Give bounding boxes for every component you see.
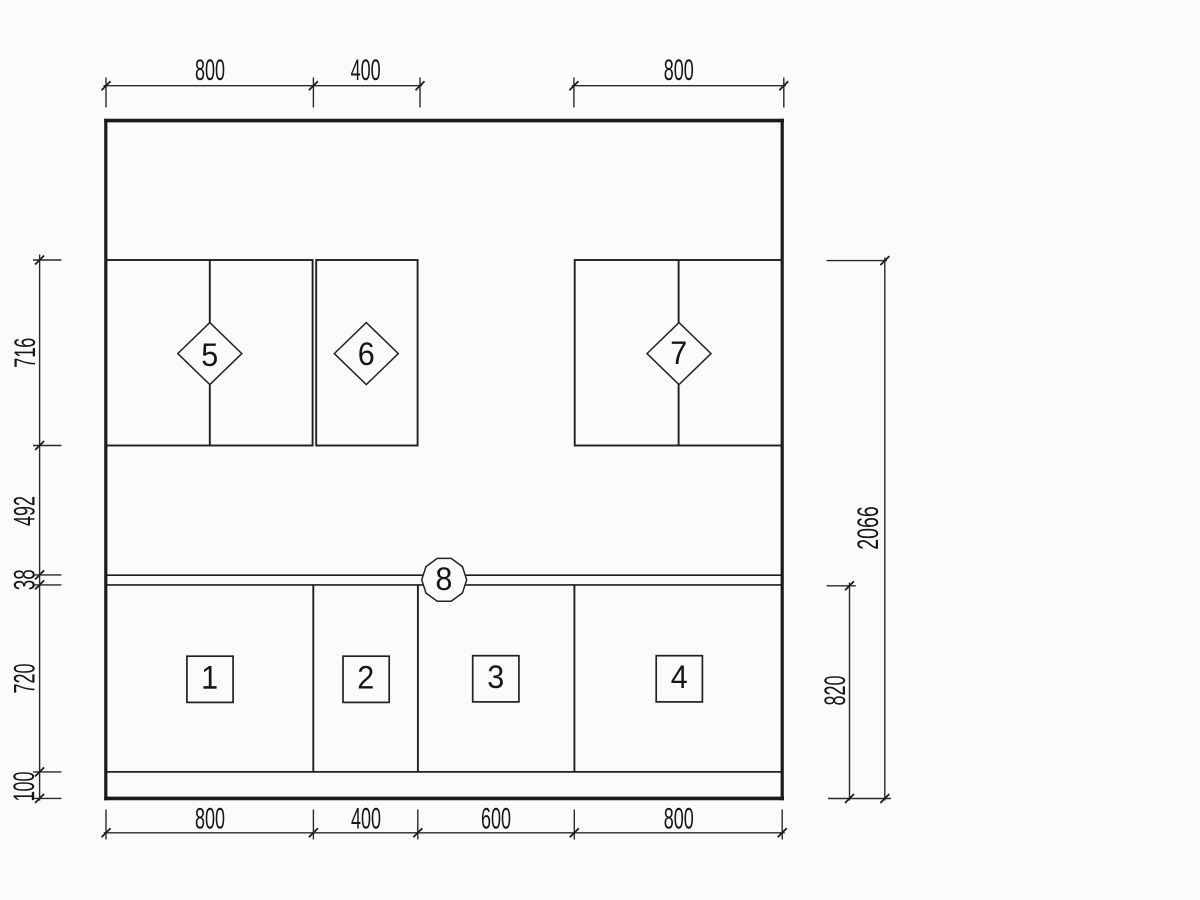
svg-text:38: 38 <box>9 569 42 590</box>
svg-text:800: 800 <box>664 54 694 87</box>
svg-text:720: 720 <box>9 664 42 694</box>
svg-text:6: 6 <box>358 336 375 372</box>
svg-text:2: 2 <box>357 660 374 696</box>
svg-text:400: 400 <box>351 803 381 836</box>
svg-text:8: 8 <box>435 561 452 597</box>
svg-text:600: 600 <box>481 803 511 836</box>
svg-text:100: 100 <box>8 772 41 802</box>
svg-text:800: 800 <box>664 803 694 836</box>
svg-text:820: 820 <box>819 676 852 706</box>
svg-text:3: 3 <box>487 659 504 695</box>
svg-text:7: 7 <box>670 335 687 371</box>
svg-text:5: 5 <box>201 337 218 373</box>
svg-text:716: 716 <box>9 338 42 368</box>
svg-text:4: 4 <box>671 659 688 695</box>
svg-text:400: 400 <box>351 54 381 87</box>
svg-text:1: 1 <box>201 660 218 696</box>
svg-text:800: 800 <box>195 54 225 87</box>
svg-text:2066: 2066 <box>852 506 885 550</box>
svg-text:800: 800 <box>195 803 225 836</box>
svg-text:492: 492 <box>9 496 42 526</box>
